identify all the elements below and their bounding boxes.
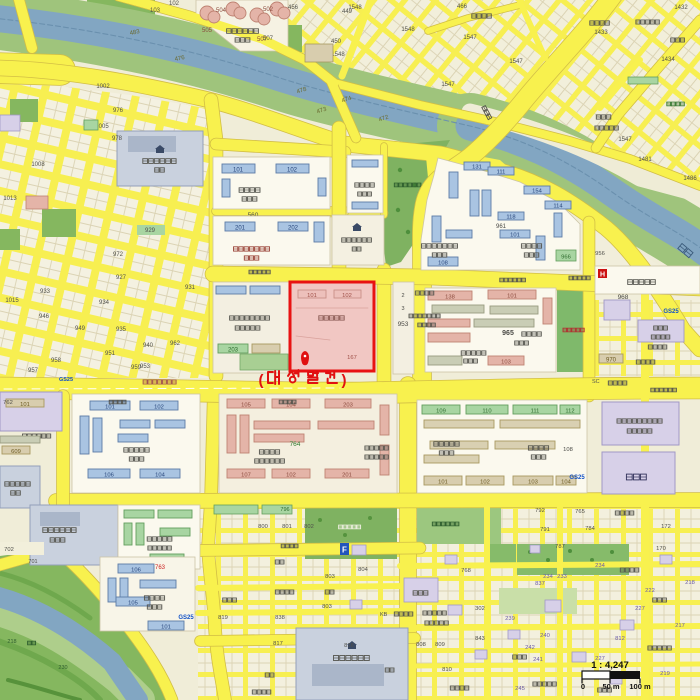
svg-text:962: 962 [170, 341, 181, 347]
svg-text:101: 101 [507, 294, 517, 300]
svg-text:801: 801 [282, 524, 292, 530]
svg-text:809: 809 [435, 642, 445, 648]
svg-text:106: 106 [104, 473, 114, 479]
svg-text:791: 791 [540, 527, 550, 533]
svg-text:949: 949 [75, 326, 86, 332]
svg-text:170: 170 [656, 546, 666, 552]
svg-text:203: 203 [343, 403, 353, 409]
svg-text:172: 172 [661, 524, 671, 530]
svg-text:1002: 1002 [96, 84, 110, 90]
svg-text:131: 131 [472, 165, 482, 171]
svg-text:609: 609 [11, 449, 21, 455]
svg-text:105: 105 [241, 403, 251, 409]
svg-text:953: 953 [140, 364, 151, 370]
svg-text:456: 456 [288, 5, 299, 11]
svg-text:302: 302 [475, 606, 485, 612]
svg-text:927: 927 [116, 275, 127, 281]
svg-text:449: 449 [342, 9, 353, 15]
svg-text:111: 111 [531, 409, 540, 415]
svg-text:940: 940 [143, 343, 154, 349]
svg-text:219: 219 [660, 671, 670, 677]
svg-text:101: 101 [438, 480, 448, 486]
svg-text:H: H [600, 272, 605, 279]
svg-text:GS25: GS25 [569, 475, 585, 481]
svg-text:201: 201 [342, 473, 352, 479]
svg-text:803: 803 [325, 574, 335, 580]
svg-text:843: 843 [475, 636, 485, 642]
svg-text:107: 107 [241, 473, 251, 479]
svg-text:101: 101 [105, 405, 115, 411]
svg-text:838: 838 [275, 615, 285, 621]
svg-text:101: 101 [20, 402, 30, 408]
svg-text:505: 505 [202, 28, 213, 34]
svg-text:154: 154 [532, 189, 542, 195]
svg-text:102: 102 [342, 293, 352, 299]
svg-text:1486: 1486 [683, 176, 697, 182]
svg-text:100 m: 100 m [629, 682, 651, 691]
svg-text:112: 112 [565, 409, 574, 415]
svg-text:241: 241 [533, 657, 543, 663]
svg-text:104: 104 [155, 473, 165, 479]
svg-text:102: 102 [287, 168, 298, 174]
svg-text:218: 218 [7, 639, 16, 645]
svg-text:1008: 1008 [31, 162, 45, 168]
svg-text:108: 108 [563, 447, 573, 453]
svg-text:101: 101 [233, 168, 244, 174]
svg-text:933: 933 [40, 289, 51, 295]
svg-text:1 : 4,247: 1 : 4,247 [591, 660, 629, 671]
svg-text:1547: 1547 [618, 137, 632, 143]
svg-text:701: 701 [28, 559, 37, 565]
svg-text:819: 819 [218, 615, 228, 621]
svg-text:1547: 1547 [463, 35, 477, 41]
svg-text:118: 118 [506, 215, 515, 221]
svg-text:103: 103 [528, 480, 538, 486]
svg-text:466: 466 [457, 4, 468, 10]
svg-text:KB: KB [380, 612, 388, 618]
svg-text:702: 702 [4, 547, 14, 553]
svg-text:966: 966 [561, 255, 571, 261]
svg-text:1432: 1432 [674, 5, 688, 11]
svg-text:812: 812 [615, 636, 625, 642]
svg-text:1548: 1548 [331, 52, 345, 58]
svg-text:101: 101 [161, 625, 171, 631]
svg-text:792: 792 [535, 508, 545, 514]
svg-text:946: 946 [39, 314, 50, 320]
svg-text:931: 931 [185, 285, 196, 291]
svg-text:SC: SC [592, 379, 600, 385]
svg-text:965: 965 [502, 330, 514, 337]
svg-text:929: 929 [145, 228, 156, 234]
svg-text:1434: 1434 [661, 57, 675, 63]
svg-text:103: 103 [501, 360, 511, 366]
svg-text:GS25: GS25 [663, 309, 679, 315]
svg-text:110: 110 [482, 409, 491, 415]
svg-text:972: 972 [113, 252, 124, 258]
svg-text:802: 802 [304, 524, 314, 530]
svg-text:810: 810 [442, 667, 452, 673]
svg-text:GS25: GS25 [59, 377, 73, 383]
svg-text:102: 102 [480, 480, 490, 486]
svg-text:804: 804 [358, 567, 368, 573]
svg-text:218: 218 [685, 580, 695, 586]
svg-text:111: 111 [497, 170, 506, 176]
svg-text:105: 105 [128, 601, 138, 607]
svg-text:817: 817 [273, 641, 283, 647]
svg-text:227: 227 [635, 606, 645, 612]
svg-text:978: 978 [112, 136, 123, 142]
svg-text:1015: 1015 [5, 298, 19, 304]
svg-text:101: 101 [307, 293, 317, 299]
svg-text:934: 934 [99, 300, 110, 306]
svg-text:837: 837 [535, 581, 545, 587]
svg-text:1547: 1547 [441, 82, 455, 88]
svg-text:(: ( [259, 372, 264, 389]
svg-text:787: 787 [555, 544, 565, 550]
svg-text:242: 242 [525, 645, 535, 651]
svg-text:114: 114 [553, 204, 563, 210]
svg-text:951: 951 [105, 351, 116, 357]
svg-text:961: 961 [496, 224, 507, 230]
svg-text:217: 217 [675, 623, 685, 629]
svg-text:GS25: GS25 [178, 615, 194, 621]
svg-text:103: 103 [150, 8, 161, 14]
svg-text:976: 976 [113, 108, 124, 114]
svg-text:0: 0 [581, 682, 585, 691]
svg-text:935: 935 [116, 327, 127, 333]
svg-text:239: 239 [505, 616, 515, 622]
svg-text:1013: 1013 [3, 196, 17, 202]
svg-text:245: 245 [515, 686, 525, 692]
svg-text:167: 167 [347, 355, 357, 361]
svg-text:102: 102 [169, 1, 180, 7]
svg-text:1547: 1547 [509, 59, 523, 65]
svg-text:138: 138 [445, 295, 455, 301]
svg-text:3: 3 [401, 306, 404, 312]
svg-text:957: 957 [28, 368, 39, 374]
svg-text:808: 808 [416, 642, 426, 648]
svg-text:1481: 1481 [638, 157, 652, 163]
svg-text:F: F [342, 546, 347, 555]
svg-text:958: 958 [51, 358, 62, 364]
svg-text:800: 800 [258, 524, 268, 530]
svg-text:230: 230 [58, 665, 67, 671]
svg-text:233: 233 [557, 574, 567, 580]
svg-text:953: 953 [398, 321, 409, 328]
svg-text:763: 763 [155, 565, 166, 571]
svg-text:784: 784 [585, 526, 595, 532]
svg-text:1548: 1548 [401, 27, 415, 33]
svg-text:959: 959 [131, 365, 142, 371]
svg-text:956: 956 [595, 251, 605, 257]
svg-text:803: 803 [322, 604, 332, 610]
svg-text:970: 970 [606, 358, 617, 364]
svg-text:101: 101 [510, 233, 520, 239]
svg-text:768: 768 [461, 568, 471, 574]
svg-text:1433: 1433 [594, 30, 608, 36]
svg-text:234: 234 [543, 574, 553, 580]
svg-text:816: 816 [344, 643, 354, 649]
svg-text:102: 102 [154, 405, 164, 411]
svg-text:108: 108 [438, 261, 448, 267]
svg-text:240: 240 [540, 633, 550, 639]
svg-text:201: 201 [235, 226, 246, 232]
svg-text:507: 507 [263, 36, 274, 42]
svg-text:764: 764 [290, 441, 301, 448]
svg-text:502: 502 [263, 7, 274, 13]
svg-text:234: 234 [595, 563, 605, 569]
svg-text:504: 504 [216, 8, 227, 14]
svg-text:50 m: 50 m [602, 682, 619, 691]
svg-text:109: 109 [436, 409, 446, 415]
svg-text:106: 106 [131, 568, 141, 574]
svg-text:): ) [342, 372, 347, 389]
svg-text:102: 102 [286, 473, 296, 479]
svg-text:202: 202 [288, 226, 299, 232]
svg-text:2: 2 [401, 293, 404, 299]
svg-text:203: 203 [228, 348, 239, 354]
svg-text:765: 765 [575, 509, 585, 515]
svg-text:796: 796 [280, 507, 289, 513]
svg-text:762: 762 [3, 400, 13, 406]
svg-text:222: 222 [645, 588, 655, 594]
